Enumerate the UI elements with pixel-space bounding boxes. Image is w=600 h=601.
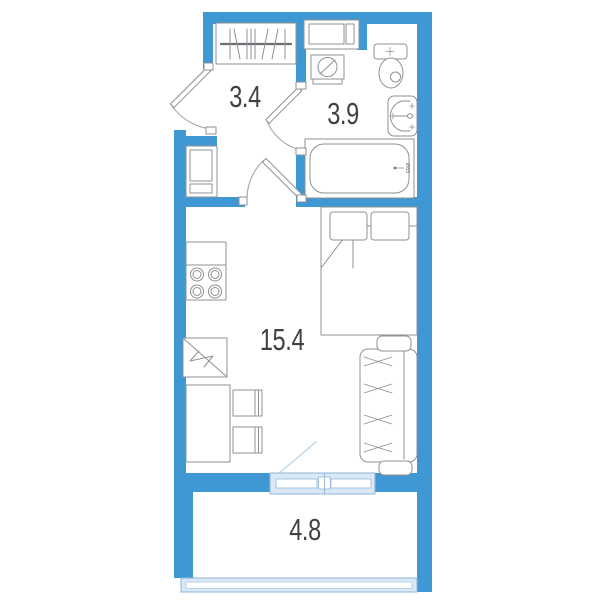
floor-plan-graphics: Ø63 — [0, 0, 600, 601]
bathtub-icon: Ø63 — [305, 139, 414, 198]
storage-shelf-icon — [304, 20, 359, 49]
chair-icon — [233, 390, 262, 416]
room-label-bathroom: 3.9 — [327, 96, 359, 132]
kitchen-sink-icon — [183, 338, 227, 377]
washing-machine-icon — [311, 55, 344, 84]
room-label-living-room: 15.4 — [260, 322, 304, 358]
bed-icon — [321, 207, 417, 335]
toilet-icon — [374, 44, 407, 88]
balcony-door-window-icon — [270, 442, 375, 494]
room-label-hall: 3.4 — [229, 79, 261, 115]
bathroom-door-icon — [266, 82, 306, 155]
floor-plan: Ø63 — [0, 0, 600, 601]
bathtub-drain-label: Ø63 — [404, 163, 410, 173]
washbasin-icon — [388, 96, 417, 136]
balcony-glazing-icon — [181, 578, 417, 592]
room-label-balcony: 4.8 — [289, 512, 321, 548]
entry-door-icon — [170, 63, 216, 134]
dining-table-icon — [186, 385, 230, 462]
wardrobe-icon — [216, 23, 296, 64]
chair-icon — [233, 427, 262, 453]
sofa-icon — [360, 336, 417, 475]
room-door-icon — [239, 158, 306, 205]
utility-shaft-icon — [186, 146, 217, 197]
stove-icon — [186, 242, 226, 300]
